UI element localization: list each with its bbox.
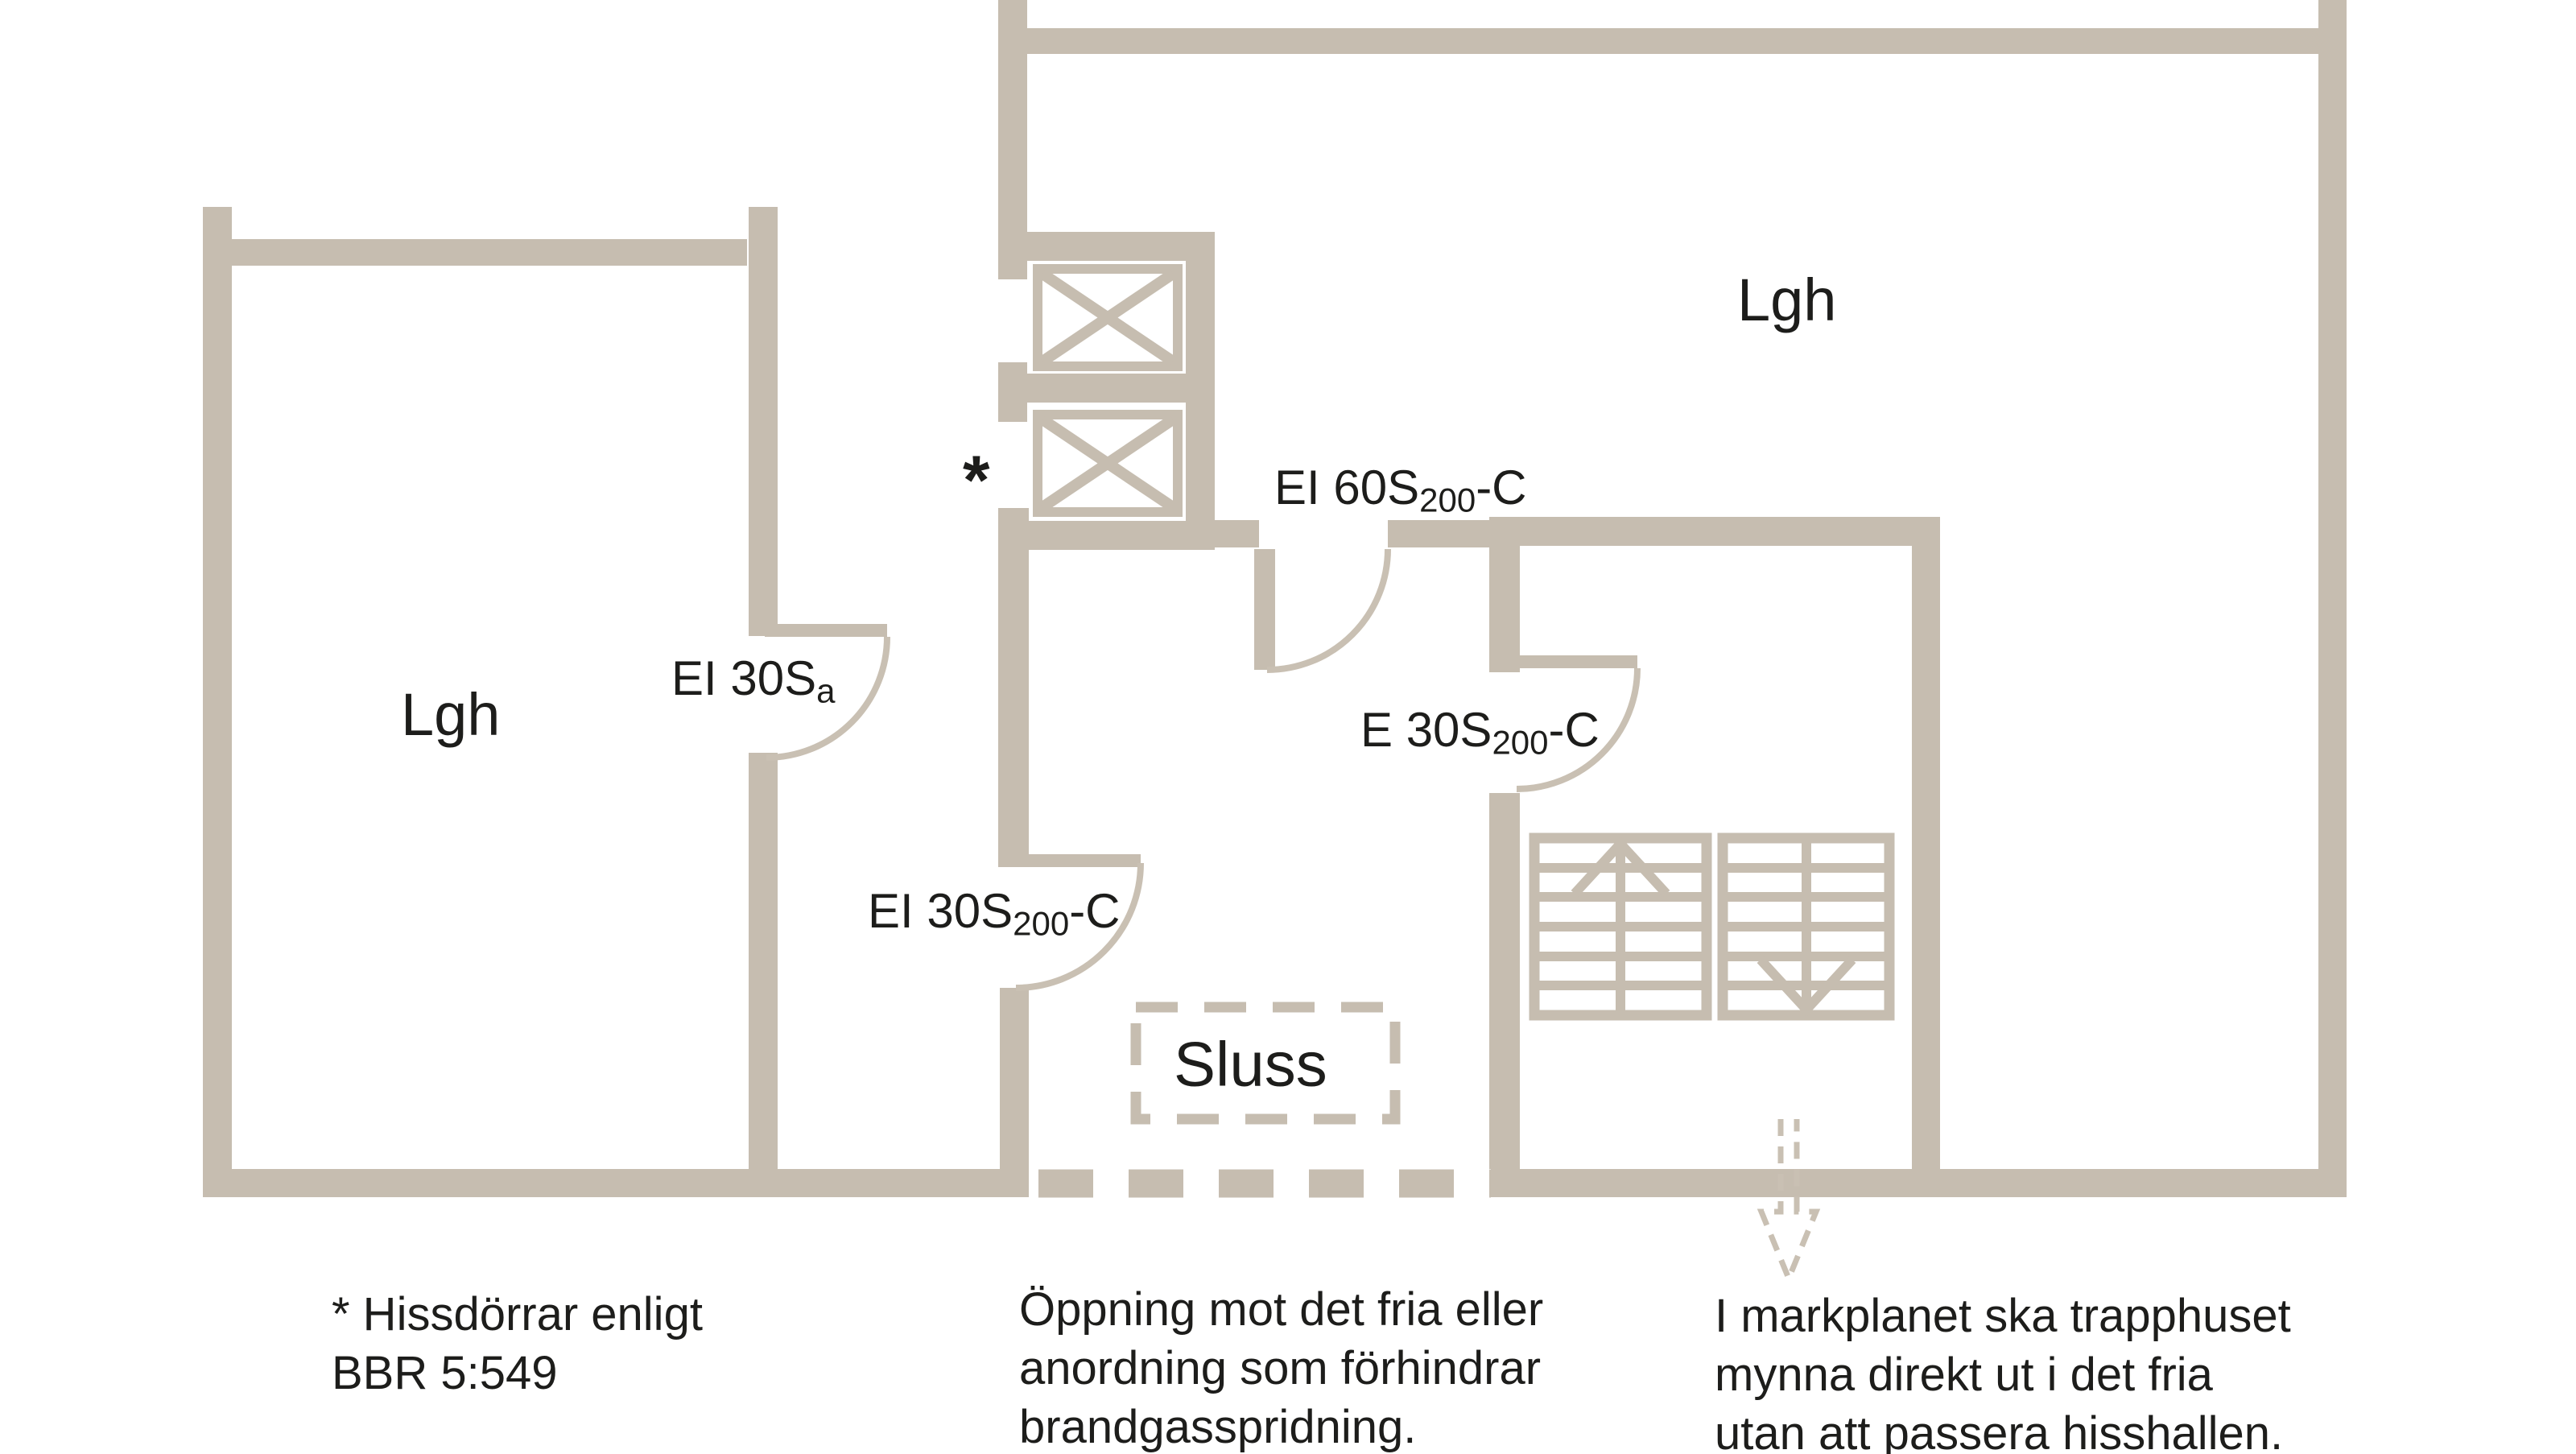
annotation-hissdorrar-line1: * Hissdörrar enligt (332, 1285, 703, 1344)
door-label-ei60s-main: EI 60S (1274, 461, 1419, 514)
door-swing-arc-ei60s (1267, 549, 1388, 670)
annotation-markplanet-line1: I markplanet ska trapphuset (1715, 1287, 2291, 1345)
door-label-ei30s200-main: EI 30S (868, 884, 1013, 938)
door-label-e30s-sub: 200 (1492, 724, 1548, 762)
plan-linework (0, 0, 2576, 1454)
floor-plan: Lgh Lgh * Sluss EI 30Sa EI 60S200-C E 30… (0, 0, 2576, 1454)
door-label-ei30sa-sub: a (816, 672, 835, 710)
annotation-markplanet-line2: mynna direkt ut i det fria (1715, 1345, 2291, 1404)
door-label-ei30s200-sub: 200 (1013, 905, 1069, 943)
annotation-markplanet-line3: utan att passera hisshallen. (1715, 1404, 2291, 1454)
annotation-oppning-line2: anordning som förhindrar (1019, 1339, 1543, 1398)
door-label-ei30sa: EI 30Sa (671, 651, 835, 711)
annotation-oppning-line3: brandgasspridning. (1019, 1398, 1543, 1454)
door-label-e30s-main: E 30S (1360, 703, 1492, 757)
annotation-hissdorrar-line2: BBR 5:549 (332, 1344, 703, 1402)
elevator-note-asterisk: * (963, 441, 989, 521)
door-label-e30s-suffix: -C (1549, 703, 1600, 757)
door-label-ei30s200-suffix: -C (1069, 884, 1120, 938)
door-label-ei60s: EI 60S200-C (1274, 460, 1527, 520)
door-label-ei60s-suffix: -C (1476, 461, 1526, 514)
door-label-ei30sa-main: EI 30S (671, 651, 816, 705)
door-label-e30s: E 30S200-C (1360, 702, 1600, 762)
sluss-label: Sluss (1174, 1028, 1327, 1101)
annotation-hissdorrar: * Hissdörrar enligt BBR 5:549 (332, 1285, 703, 1402)
annotation-oppning: Öppning mot det fria eller anordning som… (1019, 1280, 1543, 1454)
apartment-left-label: Lgh (401, 680, 500, 749)
apartment-right-label: Lgh (1737, 266, 1836, 334)
annotation-markplanet: I markplanet ska trapphuset mynna direkt… (1715, 1287, 2291, 1454)
exit-dashed-arrow (1761, 1119, 1816, 1278)
door-label-ei60s-sub: 200 (1419, 481, 1476, 519)
door-label-ei30s200: EI 30S200-C (868, 883, 1121, 944)
annotation-oppning-line1: Öppning mot det fria eller (1019, 1280, 1543, 1339)
